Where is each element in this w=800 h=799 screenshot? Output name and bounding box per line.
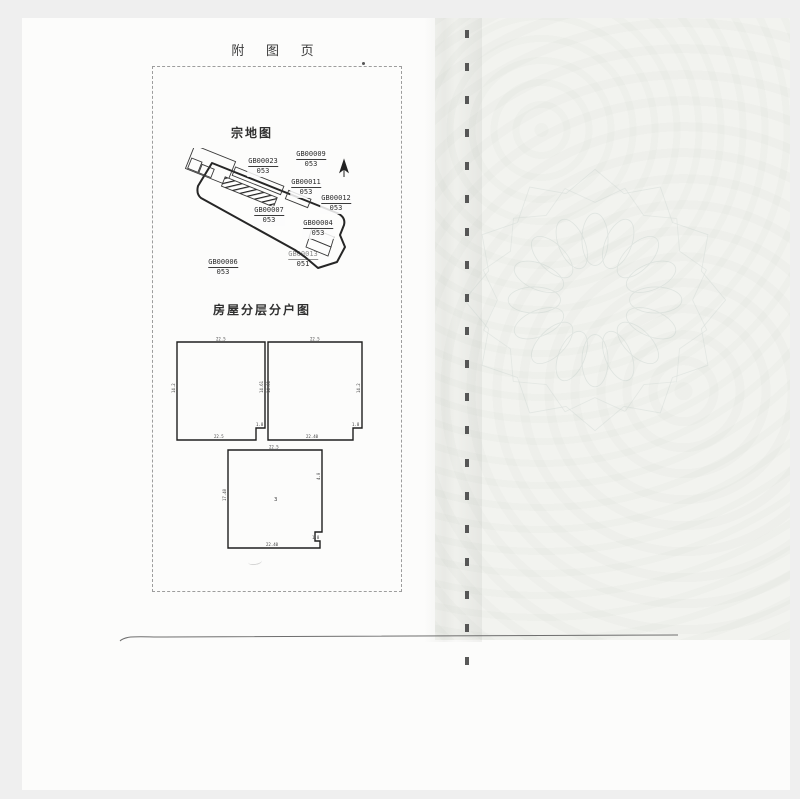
dimension-label: 14.2: [356, 383, 361, 393]
dimension-label: 22.40: [266, 542, 279, 547]
dimension-label: 4.0: [316, 472, 321, 480]
binding-stitches: [465, 30, 469, 666]
page-bottom-edge: [116, 630, 682, 646]
parcel-label: GB00023 053: [247, 157, 279, 177]
parcel-label: GB00006 053: [207, 258, 239, 278]
parcel-id: GB00023: [248, 157, 278, 167]
parcel-label: GB00007 053: [253, 206, 285, 226]
parcel-id: GB00013: [288, 250, 318, 260]
north-arrow-icon: [340, 160, 348, 177]
dimension-label: 22.5: [214, 434, 224, 439]
parcel-id: GB00007: [254, 206, 284, 216]
unit-outline: [268, 342, 362, 440]
dimension-label: 22.5: [310, 337, 320, 342]
dimension-label: 14.61: [259, 380, 264, 393]
page-title: 附 图 页: [192, 40, 362, 59]
parcel-label: GB00009 053: [295, 150, 327, 170]
parcel-id: GB00009: [296, 150, 326, 160]
parcel-zone: 053: [312, 229, 325, 237]
scan-speck: [362, 62, 365, 65]
parcel-zone: 053: [257, 167, 270, 175]
dimension-label: 22.40: [306, 434, 319, 439]
parcel-zone: 053: [217, 268, 230, 276]
dimension-label: 22.5: [216, 337, 226, 342]
parcel-label: GB00004 053: [302, 219, 334, 239]
dimension-label: 1.8: [256, 422, 264, 427]
parcel-id: GB00011: [291, 178, 321, 188]
parcel-zone: 053: [300, 188, 313, 196]
parcel-map-title: 宗地图: [182, 124, 322, 141]
dimension-label: 14.2: [171, 383, 176, 393]
room-number: 3: [274, 497, 277, 503]
dimension-label: 1.8: [312, 535, 320, 540]
floorplan-title: 房屋分层分户图: [192, 301, 332, 318]
parcel-id: GB00004: [303, 219, 333, 229]
watermark-rosette-icon: [455, 160, 735, 440]
parcel-label: GB00013 051: [287, 250, 319, 270]
parcel-zone: 051: [297, 260, 310, 268]
dimension-label: 14.61: [266, 380, 271, 393]
parcel-label: GB00011 053: [290, 178, 322, 198]
dimension-label: 17.40: [222, 488, 227, 501]
parcel-id: GB00012: [321, 194, 351, 204]
dimension-label: 22.5: [269, 445, 279, 450]
dimension-label: 1.8: [352, 422, 360, 427]
parcel-zone: 053: [330, 204, 343, 212]
parcel-label: GB00012 053: [320, 194, 352, 214]
floorplan-drawing: 22.5 22.5 14.2 14.61 1.8 22.5 22.40 14.6…: [168, 334, 372, 570]
parcel-id: GB00006: [208, 258, 238, 268]
parcel-zone: 053: [305, 160, 318, 168]
document-page: 附 图 页 宗地图: [22, 18, 790, 790]
parcel-zone: 053: [263, 216, 276, 224]
unit-outline: [177, 342, 265, 440]
